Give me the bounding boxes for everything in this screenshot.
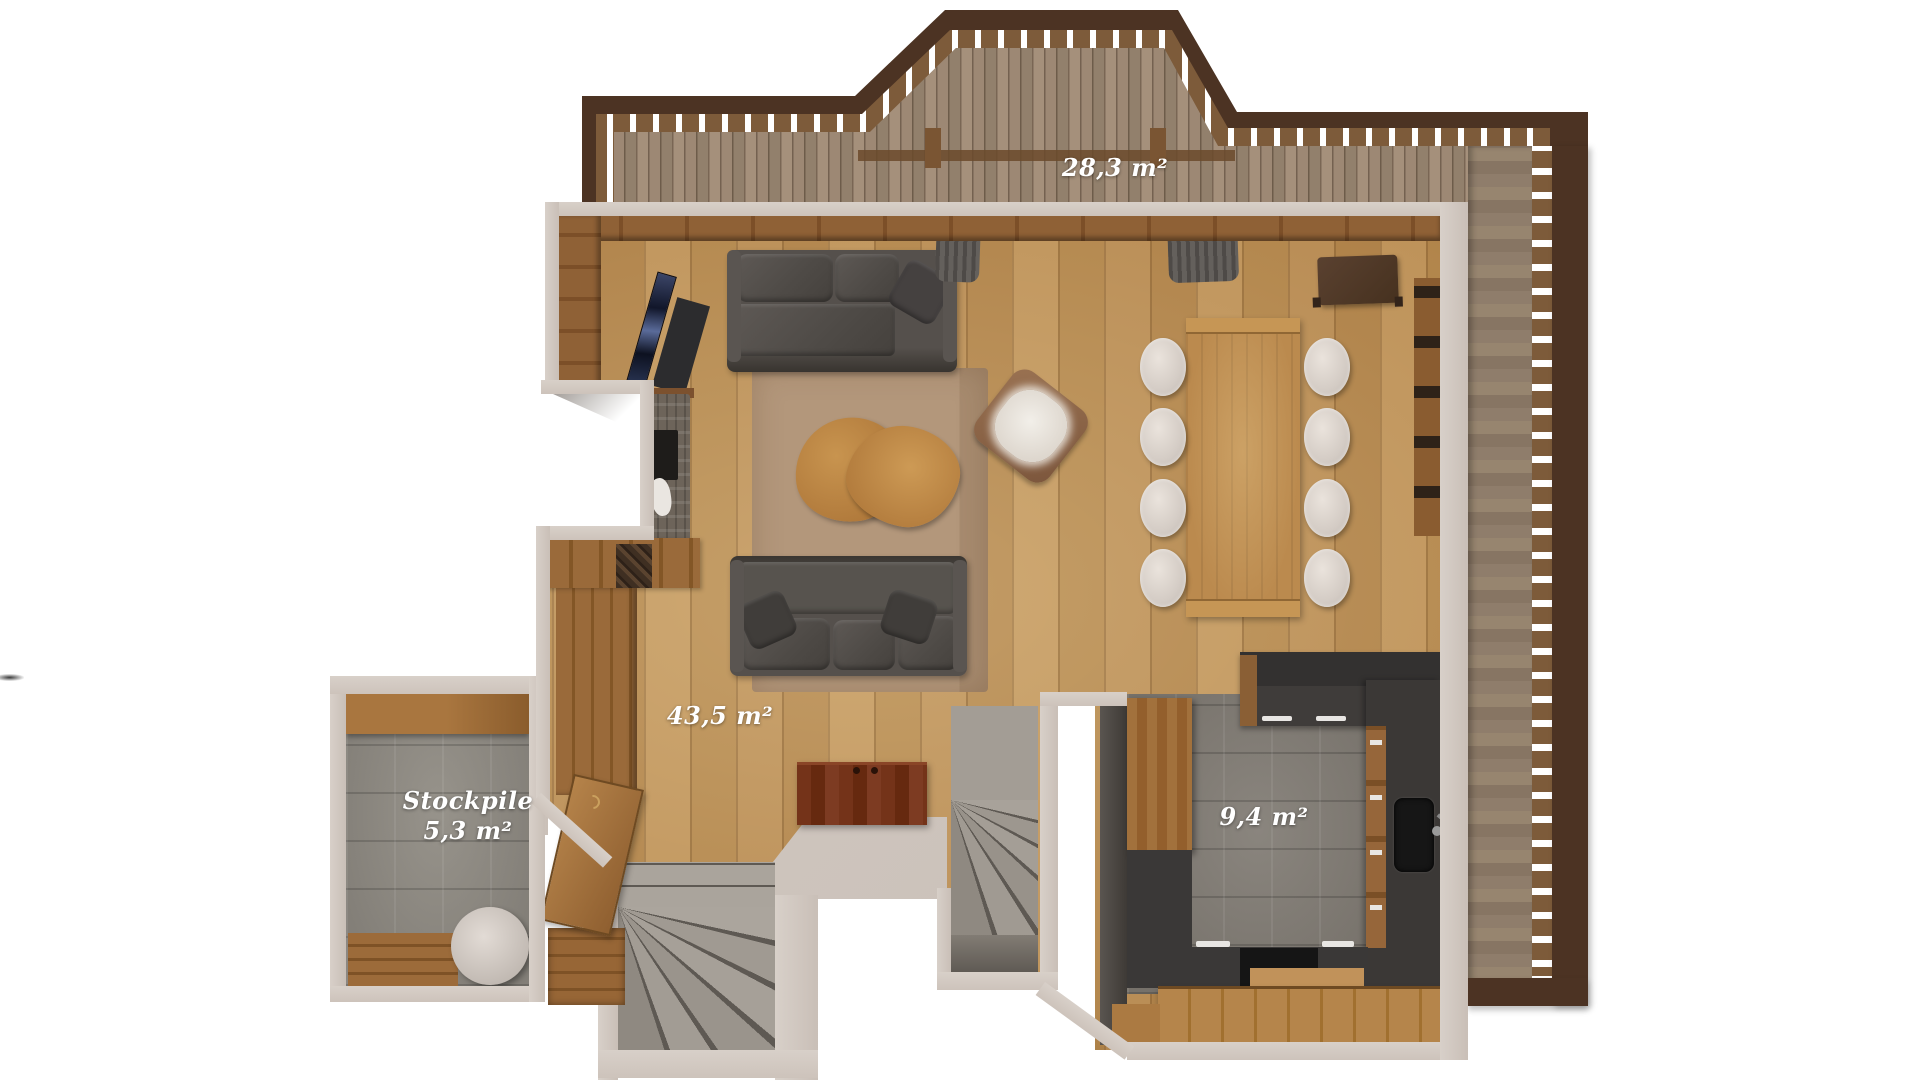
- stair-top-landing: [951, 706, 1038, 800]
- firewood-stack: [616, 544, 652, 588]
- dining-chair[interactable]: [1304, 479, 1350, 537]
- wall-recess-shadow: [553, 394, 643, 434]
- kitchen-wood-cabinet: [1127, 698, 1192, 852]
- label-stockpile-area: 5,3 m²: [388, 816, 548, 845]
- dining-chair[interactable]: [1140, 549, 1186, 607]
- kitchen-counter-lower: [1127, 850, 1192, 988]
- stockpile-wall: [330, 986, 545, 1002]
- stockpile-shelf: [346, 694, 529, 734]
- drawer-front-strip: [1366, 726, 1386, 948]
- stockpile-wall: [330, 676, 346, 1002]
- dining-chair[interactable]: [1304, 549, 1350, 607]
- dining-chair[interactable]: [1140, 408, 1186, 466]
- side-bench: [556, 588, 637, 795]
- dining-chair[interactable]: [1304, 408, 1350, 466]
- sofa-armrest: [730, 560, 744, 672]
- kitchen-counter-right: [1366, 680, 1440, 988]
- deck-boards-right: [1468, 146, 1532, 1006]
- drawer-handle: [1370, 795, 1382, 800]
- coffee-table[interactable]: [795, 412, 965, 532]
- terrace-deck-right[interactable]: [1468, 146, 1588, 1006]
- wall-left-lower: [536, 526, 550, 806]
- counter-side-panel: [1240, 655, 1257, 726]
- stove: [650, 430, 678, 480]
- round-table[interactable]: [451, 907, 529, 985]
- dining-table[interactable]: [1186, 318, 1300, 617]
- side-table[interactable]: [1317, 255, 1399, 306]
- stairwell-wall: [1040, 692, 1058, 990]
- drawer-handle: [1370, 850, 1382, 855]
- kitchen-bench-step: [1250, 968, 1364, 988]
- kitchen-bottom-wall: [1127, 1042, 1468, 1060]
- table-leg: [1395, 296, 1403, 306]
- sofa-back-cushion: [737, 254, 833, 302]
- railing-outer-right: [1552, 146, 1588, 1006]
- dining-chair[interactable]: [1140, 338, 1186, 396]
- railing-bottom-cap: [1468, 978, 1588, 1006]
- sofa-upper[interactable]: [727, 250, 957, 372]
- mahogany-cabinet[interactable]: [797, 762, 927, 825]
- drawer-handle: [1322, 941, 1354, 947]
- artifact-dash: [0, 674, 24, 681]
- cabinet-knob: [853, 767, 860, 774]
- stair-lower-flight: [951, 935, 1038, 972]
- table-leg: [1313, 297, 1321, 307]
- cabinet-knob: [871, 767, 878, 774]
- wall-recess-bottom: [541, 526, 654, 540]
- kitchen-left-wall-dark: [1100, 700, 1127, 1045]
- sofa-armrest: [727, 250, 741, 362]
- kitchen-bench: [1158, 986, 1456, 1042]
- stairwell-kitchen-connector: [1040, 692, 1127, 706]
- label-living-area: 43,5 m²: [640, 701, 800, 730]
- label-kitchen-area: 9,4 m²: [1184, 802, 1344, 831]
- stockpile-wall: [330, 676, 545, 694]
- drawer-handle: [1370, 740, 1382, 745]
- label-terrace-area: 28,3 m²: [1035, 153, 1195, 182]
- dining-table-end: [1186, 599, 1300, 617]
- staircase-kitchen-side[interactable]: [937, 692, 1058, 990]
- window-sill-bench: [557, 214, 1440, 241]
- drawer-handle: [1196, 941, 1230, 947]
- sofa-lower[interactable]: [730, 556, 967, 676]
- winder-steps: [951, 800, 1038, 935]
- stockpile-steps: [348, 933, 458, 986]
- wall-recess-top: [541, 380, 654, 394]
- floor-plan-canvas: 28,3 m² 43,5 m² Stockpile 5,3 m² 9,4 m²: [0, 0, 1920, 1080]
- deck-post: [925, 128, 941, 168]
- hatch-base: [548, 928, 625, 1005]
- drawer-handle: [1370, 905, 1382, 910]
- wall-left-upper: [545, 202, 559, 382]
- dining-table-end: [1186, 318, 1300, 334]
- right-wall-shelf: [1414, 278, 1442, 536]
- wall-right: [1440, 202, 1468, 1060]
- wall-recess-right: [640, 380, 654, 540]
- railing-balusters-right: [1532, 146, 1552, 976]
- kitchen[interactable]: [1095, 640, 1468, 1062]
- wall-top: [545, 202, 1468, 216]
- drawer-handle: [1262, 716, 1292, 721]
- sofa-seat-cushion: [735, 304, 895, 356]
- stairwell-wall: [598, 1050, 818, 1078]
- dining-chair[interactable]: [1304, 338, 1350, 396]
- label-stockpile-name: Stockpile: [388, 786, 548, 815]
- dining-chair[interactable]: [1140, 479, 1186, 537]
- drawer-handle: [1316, 716, 1346, 721]
- left-wall-bench: [559, 215, 601, 393]
- kitchen-sink[interactable]: [1394, 798, 1434, 872]
- sofa-armrest: [953, 560, 967, 672]
- void: [818, 899, 944, 1009]
